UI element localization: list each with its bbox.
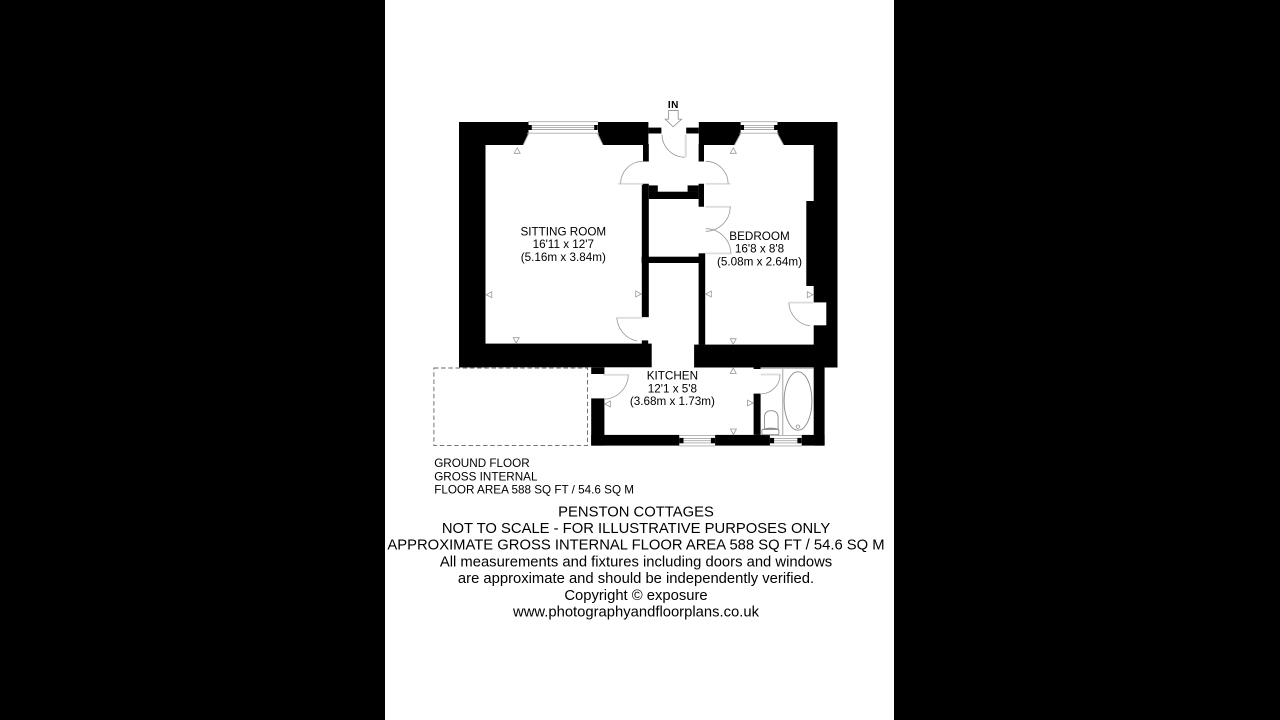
svg-text:SITTING ROOM: SITTING ROOM <box>520 225 606 238</box>
svg-text:16'11 x 12'7: 16'11 x 12'7 <box>533 238 594 251</box>
svg-text:www.photographyandfloorplans.c: www.photographyandfloorplans.co.uk <box>512 605 760 621</box>
svg-text:12'1 x 5'8: 12'1 x 5'8 <box>648 382 697 395</box>
svg-text:IN: IN <box>668 100 679 111</box>
svg-text:(5.08m x 2.64m): (5.08m x 2.64m) <box>717 255 802 268</box>
svg-text:BEDROOM: BEDROOM <box>729 230 789 243</box>
svg-text:Copyright © exposure: Copyright © exposure <box>564 588 707 604</box>
svg-text:are approximate and should be: are approximate and should be independen… <box>458 571 814 587</box>
svg-text:GROUND FLOOR: GROUND FLOOR <box>434 457 529 470</box>
svg-text:PENSTON COTTAGES: PENSTON COTTAGES <box>558 504 714 520</box>
svg-text:NOT TO SCALE - FOR ILLUSTRATIV: NOT TO SCALE - FOR ILLUSTRATIVE PURPOSES… <box>442 521 831 537</box>
svg-text:APPROXIMATE GROSS INTERNAL FLO: APPROXIMATE GROSS INTERNAL FLOOR AREA 58… <box>387 538 884 554</box>
svg-text:GROSS INTERNAL: GROSS INTERNAL <box>434 470 538 483</box>
svg-text:16'8 x 8'8: 16'8 x 8'8 <box>735 243 784 256</box>
svg-text:(3.68m x 1.73m): (3.68m x 1.73m) <box>630 395 715 408</box>
svg-text:All measurements and fixtures: All measurements and fixtures including … <box>440 555 832 571</box>
svg-text:(5.16m x 3.84m): (5.16m x 3.84m) <box>521 251 606 264</box>
svg-text:KITCHEN: KITCHEN <box>647 370 698 383</box>
svg-text:FLOOR AREA 588 SQ FT / 54.6 SQ: FLOOR AREA 588 SQ FT / 54.6 SQ M <box>434 484 634 497</box>
